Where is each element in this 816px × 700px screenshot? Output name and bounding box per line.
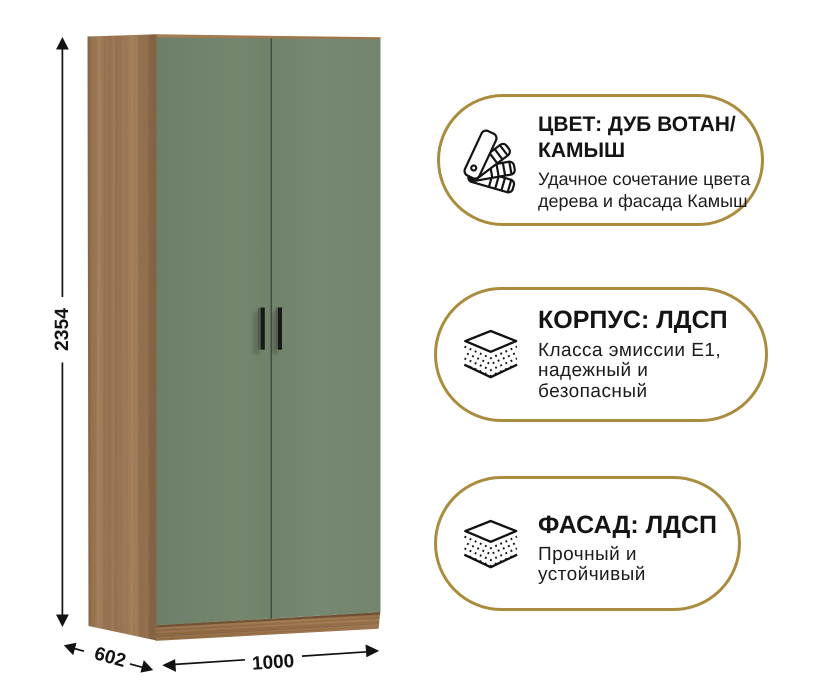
svg-text:1000: 1000	[251, 651, 295, 675]
svg-text:602: 602	[92, 643, 128, 672]
svg-text:2354: 2354	[52, 308, 73, 351]
